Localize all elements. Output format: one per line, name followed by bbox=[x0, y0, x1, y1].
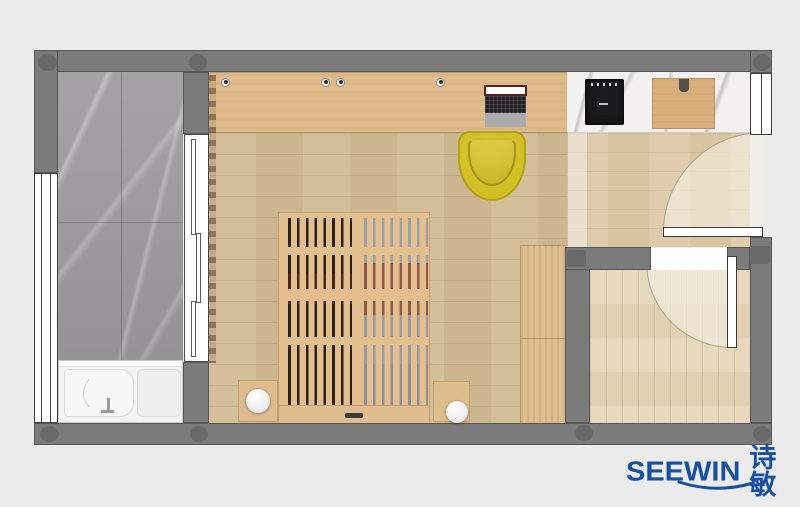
bed-cross-rail bbox=[281, 247, 429, 255]
bed-handle bbox=[345, 413, 363, 418]
cooktop-controls bbox=[591, 83, 618, 86]
laptop-deck bbox=[485, 113, 526, 127]
wall-column bbox=[753, 54, 771, 71]
wall-column bbox=[753, 426, 771, 442]
ball-lamp-right bbox=[446, 401, 468, 423]
storage-door-opening bbox=[651, 248, 727, 270]
cooktop-display bbox=[599, 103, 608, 105]
wall-column bbox=[40, 426, 59, 442]
laptop-keyboard bbox=[485, 96, 526, 113]
wall-column bbox=[38, 54, 57, 71]
ball-lamp-left bbox=[246, 389, 270, 413]
cutting-board bbox=[652, 78, 715, 129]
desk-grommet bbox=[321, 78, 330, 87]
curtain-edge bbox=[209, 75, 216, 363]
window-left bbox=[34, 173, 58, 423]
tile-seam bbox=[58, 222, 183, 223]
logo-chinese: 诗敏 bbox=[749, 445, 798, 499]
door-panel bbox=[191, 301, 196, 357]
laptop bbox=[484, 85, 527, 127]
window-kitchen bbox=[750, 73, 772, 135]
seewin-logo: SEEWIN 诗敏 bbox=[626, 450, 798, 494]
wall-storage-left bbox=[565, 247, 590, 423]
cutting-board-handle bbox=[679, 79, 689, 92]
wall-column bbox=[567, 250, 586, 267]
chair-seat bbox=[468, 138, 516, 186]
desk-grommet bbox=[436, 78, 445, 87]
induction-cooktop bbox=[585, 79, 624, 125]
bathroom-marble-floor bbox=[58, 72, 183, 362]
glass-partition bbox=[567, 133, 588, 247]
desk-grommet bbox=[336, 78, 345, 87]
tile-seam bbox=[121, 72, 122, 362]
faucet-bar bbox=[101, 410, 114, 413]
wall-column bbox=[750, 246, 770, 264]
slatted-bed bbox=[278, 212, 430, 423]
bathroom-sliding-door bbox=[184, 134, 209, 362]
entry-door-leaf bbox=[663, 227, 763, 237]
logo-swoosh-icon bbox=[676, 480, 756, 493]
door-panel bbox=[191, 139, 196, 235]
wall-column bbox=[189, 54, 207, 71]
bed-cross-rail bbox=[281, 289, 429, 301]
wall-column bbox=[575, 425, 593, 441]
wall-bathroom-lower bbox=[183, 362, 209, 423]
laptop-screen bbox=[484, 85, 527, 96]
wardrobe-cabinet bbox=[520, 245, 567, 423]
door-panel bbox=[196, 233, 201, 303]
wall-top bbox=[34, 50, 772, 72]
wall-bottom bbox=[34, 423, 772, 445]
floorplan-screenshot: { "brand": { "wordmark": "SEEWIN", "chin… bbox=[0, 0, 800, 507]
bathtub-rim bbox=[59, 361, 182, 367]
storage-door-leaf bbox=[727, 256, 737, 348]
bathtub-basin-right bbox=[137, 369, 181, 417]
bathtub bbox=[58, 360, 183, 423]
desk-grommet bbox=[221, 78, 230, 87]
bed-cross-rail bbox=[281, 337, 429, 345]
basin-curve bbox=[83, 373, 123, 413]
wall-right-lower bbox=[750, 237, 772, 423]
bathtub-basin-left bbox=[64, 369, 134, 417]
wardrobe-seam bbox=[521, 338, 567, 339]
wall-column bbox=[190, 426, 208, 442]
wall-bathroom-upper bbox=[183, 72, 209, 134]
